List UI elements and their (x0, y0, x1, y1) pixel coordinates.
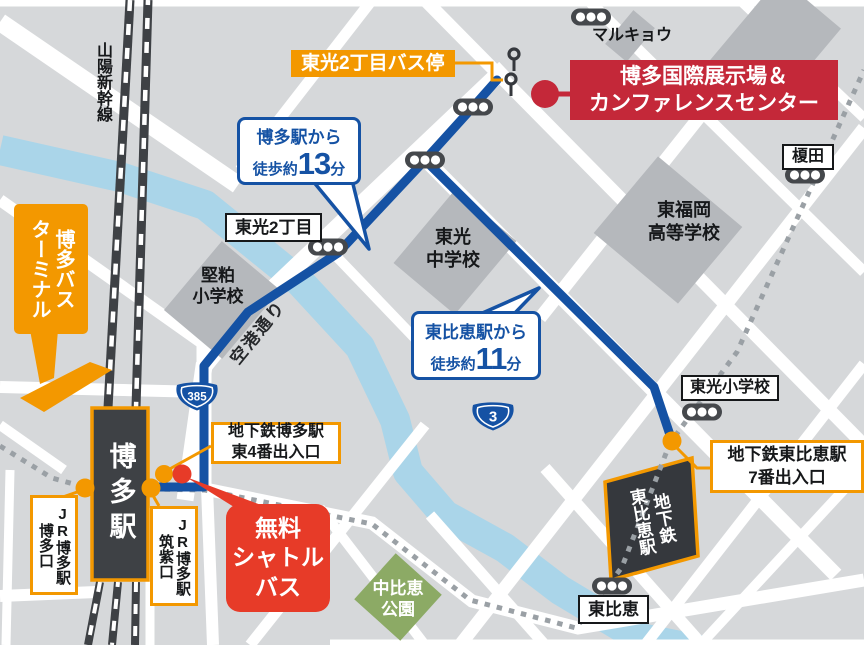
walk11-time: 徒歩約11分 (431, 343, 522, 374)
access-map: 385 3 (0, 0, 864, 645)
destination-dot (531, 80, 559, 108)
signal-icon (405, 152, 445, 169)
walk13-callout: 博多駅から 徒歩約13分 (237, 117, 361, 185)
jr-hakataguchi-label: JR博多駅 博多口 (30, 495, 78, 595)
walk11-from: 東比恵駅から (425, 318, 527, 343)
enokida-label: 榎田 (782, 144, 834, 170)
walk11-callout: 東比恵駅から 徒歩約11分 (411, 311, 541, 380)
subway-higashihie-exit7-label: 地下鉄東比恵駅 7番出入口 (710, 440, 864, 493)
free-shuttle-bus-callout: 無料 シャトル バス (226, 504, 330, 612)
destination-line1: 博多国際展示場＆ (570, 63, 838, 90)
bus-terminal-line2: ターミナル (29, 219, 49, 319)
marukyou-label: マルキョウ (592, 26, 672, 46)
svg-text:3: 3 (489, 408, 497, 425)
jr-chikushiguchi-label: JR博多駅 筑紫口 (150, 506, 198, 606)
signal-icon (453, 99, 493, 116)
bus-terminal-line1: 博多バス (53, 229, 73, 309)
subway-hakata-east4-label: 地下鉄博多駅 東4番出入口 (211, 422, 341, 464)
higashi-fukuoka-hs-label: 東福岡 高等学校 (634, 199, 734, 244)
katakasu-es-label: 堅粕 小学校 (172, 265, 264, 308)
toko-jhs-label: 東光 中学校 (408, 226, 498, 271)
walk13-minutes: 13 (298, 146, 330, 181)
signal-icon (571, 9, 611, 26)
destination-banner: 博多国際展示場＆ カンファレンスセンター (570, 60, 838, 120)
signal-icon (682, 404, 722, 421)
hakata-station-label: 博多駅 (92, 408, 148, 580)
nakahie-park-label: 中比恵 公園 (356, 578, 440, 621)
bus-stop-icon (509, 49, 519, 71)
destination-line2: カンファレンスセンター (570, 90, 838, 117)
bus-terminal-bubble: 博多バス ターミナル (14, 204, 88, 334)
higashihie-label: 東比恵 (578, 595, 649, 624)
bus-terminal-tail (30, 330, 58, 384)
walk13-from: 博多駅から (257, 123, 342, 148)
toko-2chome-label: 東光2丁目 (225, 213, 322, 242)
toko-es-label: 東光小学校 (681, 375, 779, 401)
walk11-minutes: 11 (476, 341, 507, 376)
subway-higashihie-exit7-dot (663, 432, 682, 451)
subway-hakata-east4-dot (155, 465, 173, 483)
bus-stop-label: 東光2丁目バス停 (291, 50, 455, 77)
shuttle-stop-dot (173, 465, 192, 484)
walk13-time: 徒歩約13分 (253, 148, 346, 179)
shinkansen-label: 山陽新幹線 (94, 42, 110, 122)
svg-text:385: 385 (187, 392, 207, 404)
route-3-shield: 3 (472, 402, 513, 430)
